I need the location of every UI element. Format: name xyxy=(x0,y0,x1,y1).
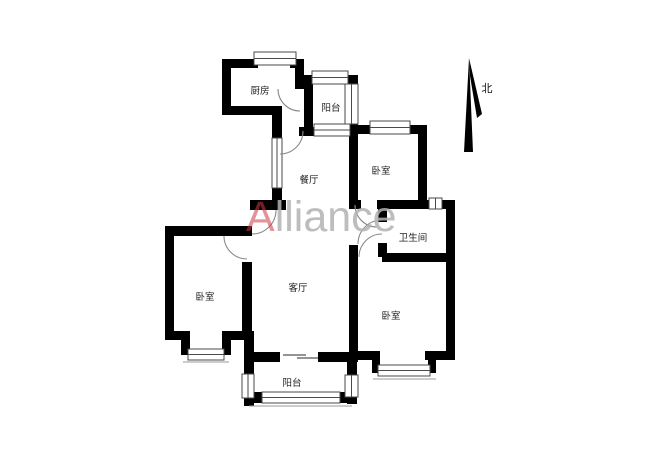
label-balcony-bottom: 阳台 xyxy=(282,375,301,389)
label-bedroom-left: 卧室 xyxy=(195,289,214,303)
label-kitchen: 厨房 xyxy=(250,83,269,97)
label-living: 客厅 xyxy=(288,280,307,294)
entry-door-arc xyxy=(252,210,276,234)
label-bathroom: 卫生间 xyxy=(399,230,428,244)
label-bedroom-top-right: 卧室 xyxy=(371,163,390,177)
bedroom-left-door-arc xyxy=(224,236,247,259)
label-bedroom-bottom-right: 卧室 xyxy=(381,308,400,322)
floorplan-canvas: Alliance 厨房 阳台 餐厅 卧室 卫生间 客厅 卧室 卧室 阳台 北 xyxy=(0,0,650,450)
north-label: 北 xyxy=(482,80,493,96)
label-dining: 餐厅 xyxy=(299,172,318,186)
bathroom-door-arc xyxy=(358,220,382,244)
label-balcony-top: 阳台 xyxy=(321,100,340,114)
floorplan-graphics xyxy=(0,0,650,450)
north-arrow-icon xyxy=(464,58,482,152)
